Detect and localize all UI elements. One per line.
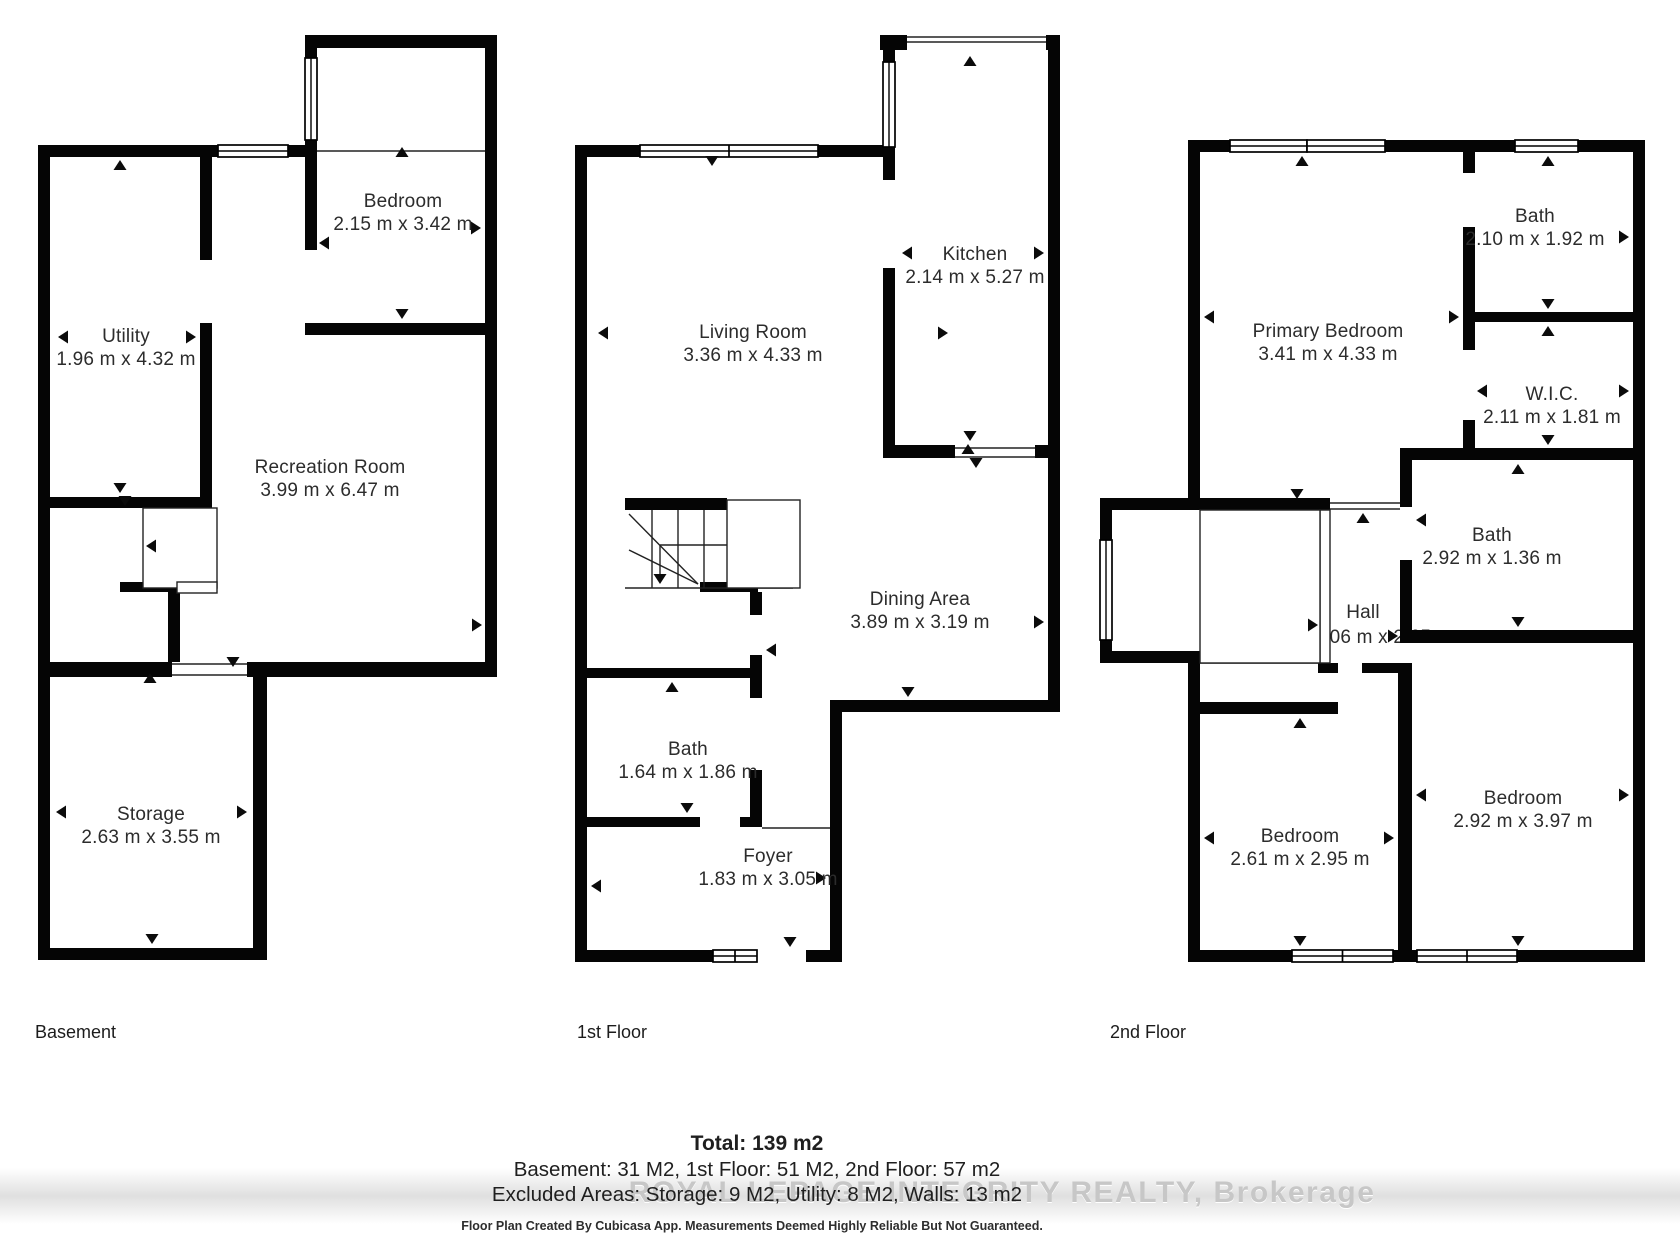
room-label-utility: Utility 1.96 m x 4.32 m — [56, 325, 195, 371]
summary-floors: Basement: 31 M2, 1st Floor: 51 M2, 2nd F… — [492, 1157, 1022, 1182]
room-label-recreation: Recreation Room 3.99 m x 6.47 m — [255, 456, 406, 502]
room-label-bath-mid: Bath 2.92 m x 1.36 m — [1422, 524, 1561, 570]
floor-label-2nd: 2nd Floor — [1110, 1022, 1186, 1043]
floorplan-drawing — [0, 0, 1680, 1260]
room-label-bath-1st: Bath 1.64 m x 1.86 m — [618, 738, 757, 784]
floor-label-basement: Basement — [35, 1022, 116, 1043]
room-label-bath-top: Bath 2.10 m x 1.92 m — [1465, 205, 1604, 251]
floor-label-1st: 1st Floor — [577, 1022, 647, 1043]
summary-total: Total: 139 m2 — [492, 1130, 1022, 1157]
room-label-primary-bedroom: Primary Bedroom 3.41 m x 4.33 m — [1253, 320, 1404, 366]
summary-excluded: Excluded Areas: Storage: 9 M2, Utility: … — [492, 1182, 1022, 1207]
room-label-foyer: Foyer 1.83 m x 3.05 m — [698, 845, 837, 891]
disclaimer-footer: Floor Plan Created By Cubicasa App. Meas… — [461, 1219, 1043, 1233]
room-label-bedroom-right: Bedroom 2.92 m x 3.97 m — [1453, 787, 1592, 833]
area-summary: Total: 139 m2 Basement: 31 M2, 1st Floor… — [492, 1130, 1022, 1207]
room-label-hall-name: Hall — [1346, 601, 1380, 624]
room-label-dining-area: Dining Area 3.89 m x 3.19 m — [850, 588, 989, 634]
room-label-storage: Storage 2.63 m x 3.55 m — [81, 803, 220, 849]
room-label-wic: W.I.C. 2.11 m x 1.81 m — [1483, 383, 1621, 429]
room-label-living-room: Living Room 3.36 m x 4.33 m — [683, 321, 822, 367]
room-label-kitchen: Kitchen 2.14 m x 5.27 m — [905, 243, 1044, 289]
room-label-bedroom-left: Bedroom 2.61 m x 2.95 m — [1230, 825, 1369, 871]
room-label-bedroom: Bedroom 2.15 m x 3.42 m — [333, 190, 472, 236]
floorplan-page: ROYAL LEPAGE INTEGRITY REALTY, Brokerage… — [0, 0, 1680, 1260]
